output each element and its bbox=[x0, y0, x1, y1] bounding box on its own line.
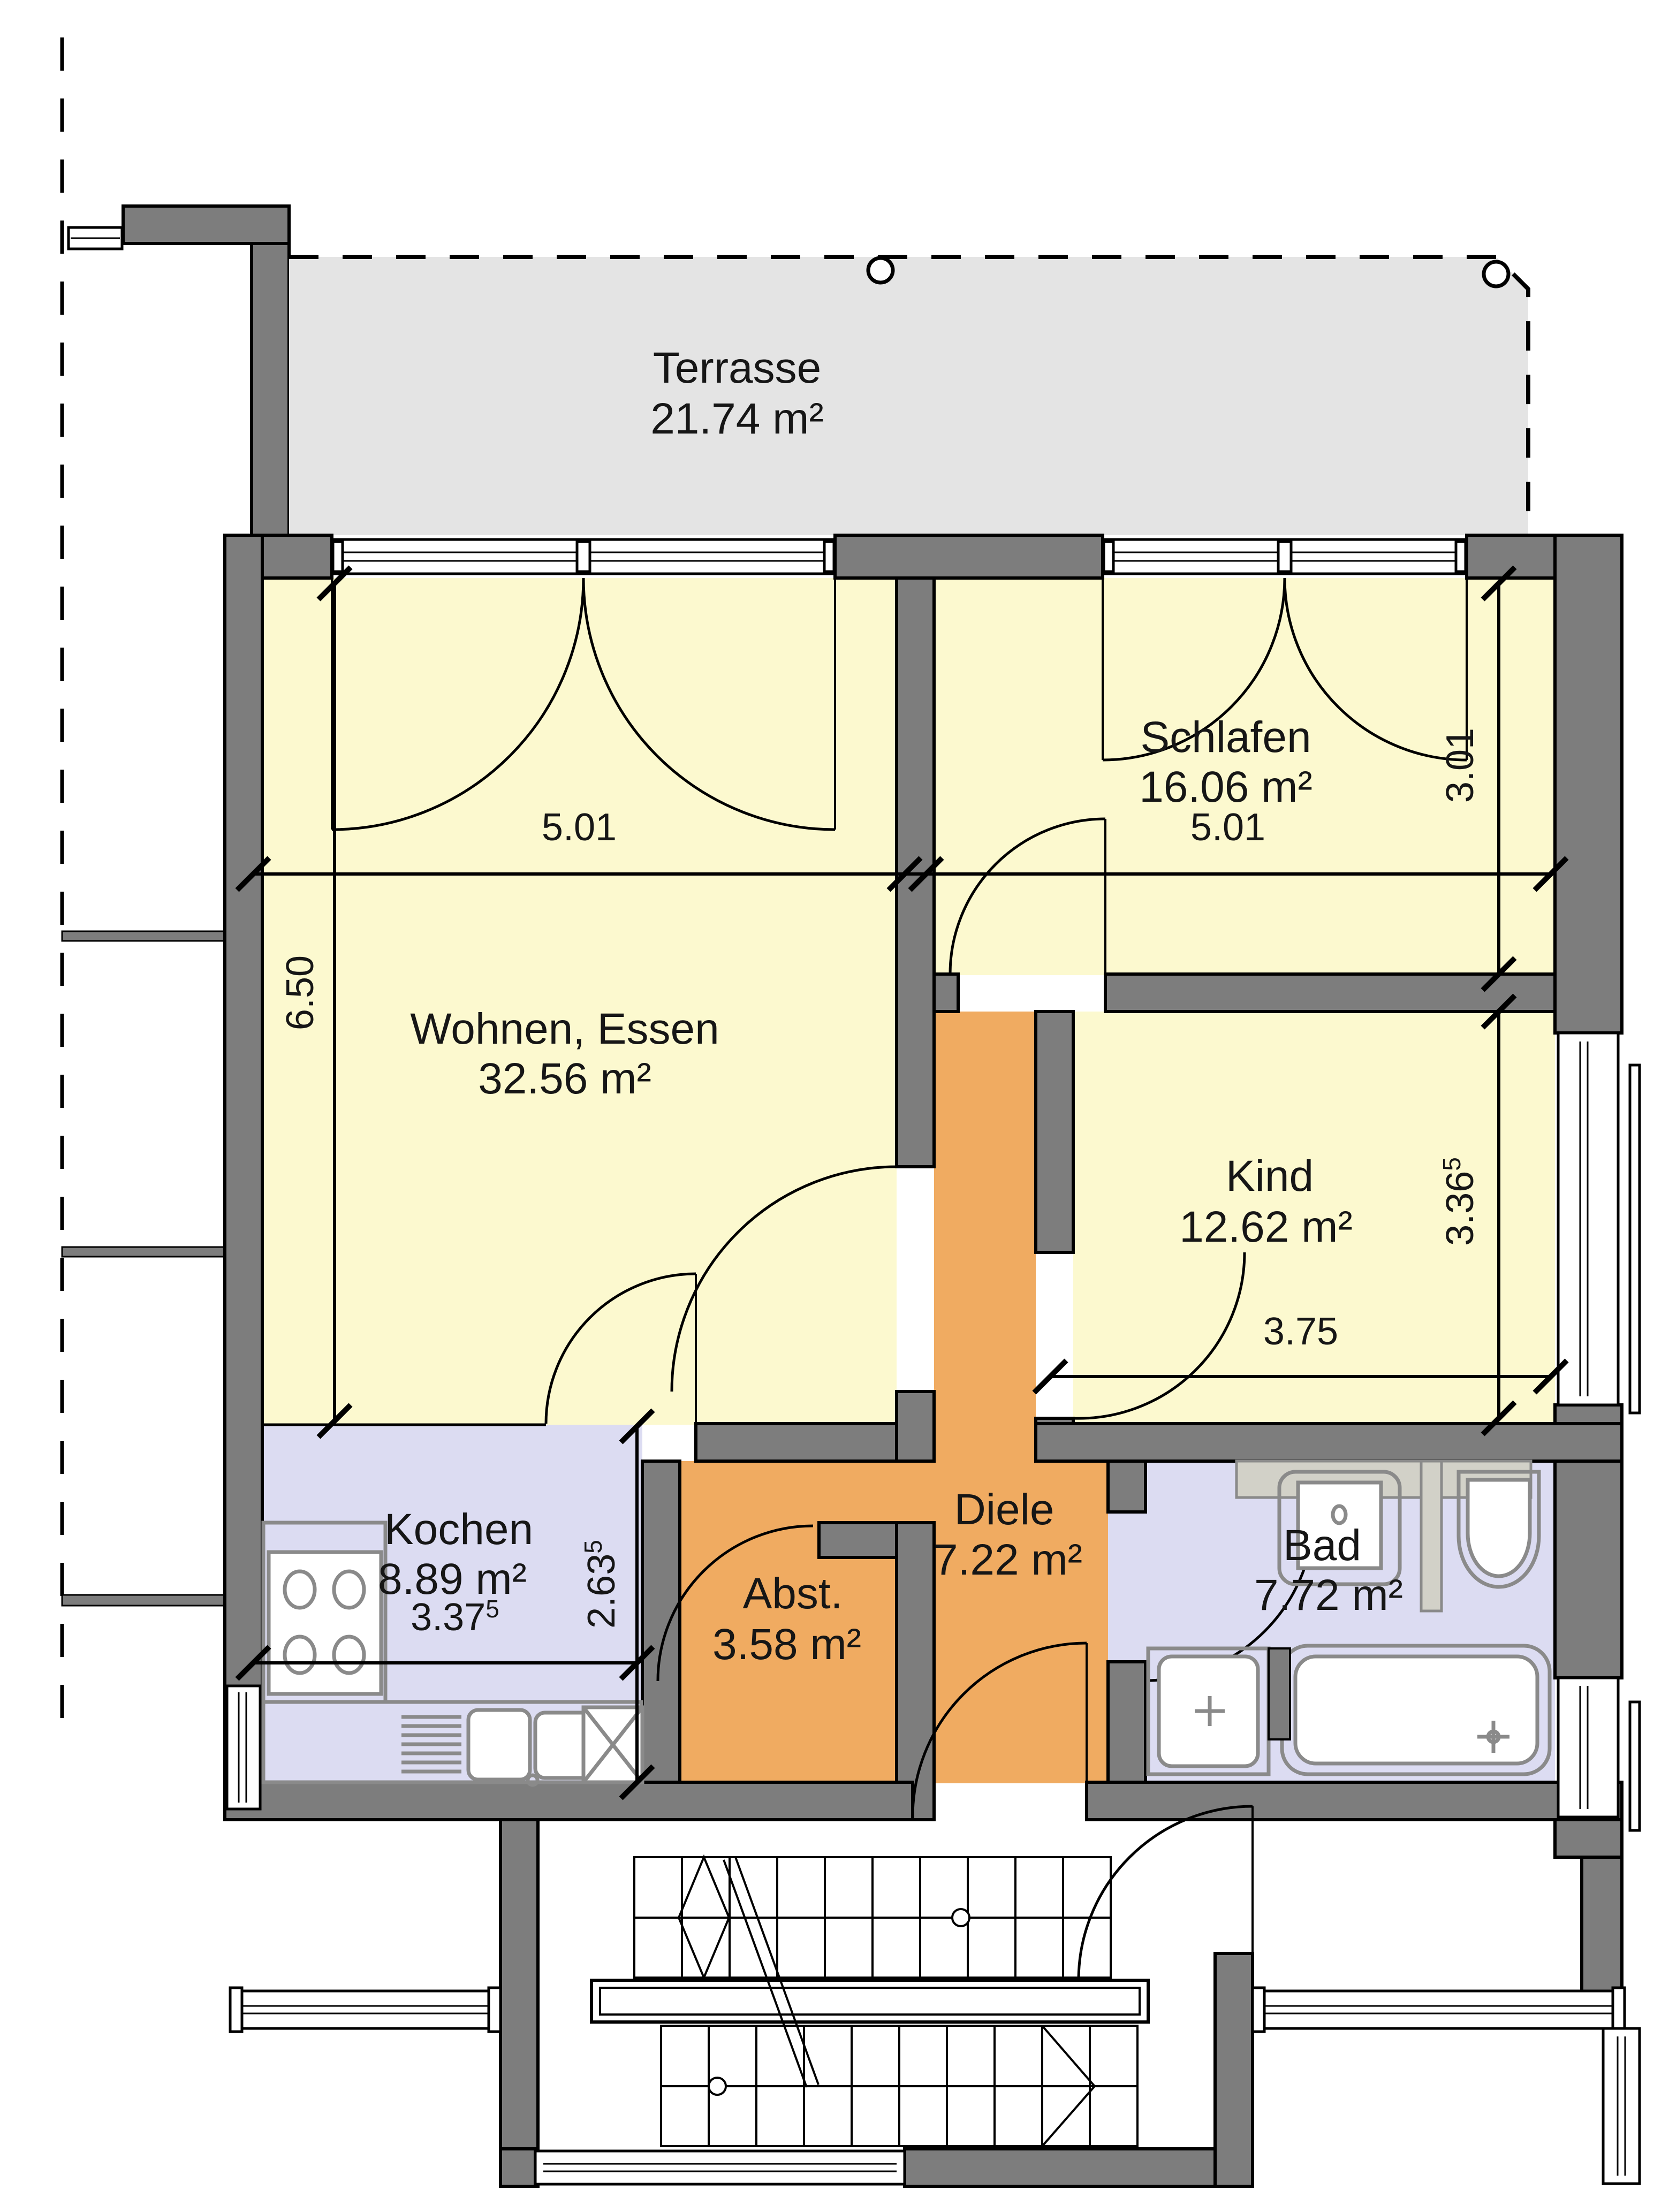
abstellraum-area-label: 3.58 m² bbox=[712, 1620, 861, 1669]
dim-schlafen-width: 5.01 bbox=[1190, 806, 1265, 849]
bath-partition bbox=[1421, 1461, 1442, 1611]
kind-area-label: 12.62 m² bbox=[1179, 1203, 1353, 1251]
svg-text:3.01: 3.01 bbox=[1439, 728, 1482, 803]
stove-icon bbox=[269, 1552, 381, 1694]
schlafen-area-label: 16.06 m² bbox=[1139, 763, 1313, 811]
shaft-icon bbox=[583, 1707, 642, 1782]
abst-door-threshold bbox=[680, 1523, 819, 1560]
toilet-icon bbox=[1459, 1472, 1539, 1587]
bathtub-icon bbox=[1282, 1646, 1550, 1774]
window-schlafen-terrace bbox=[1103, 539, 1467, 574]
abstellraum-label: Abst. bbox=[743, 1569, 843, 1618]
window-wohnen-terrace bbox=[332, 539, 835, 574]
terrasse-area-label: 21.74 m² bbox=[650, 394, 824, 443]
shower-partition-wall bbox=[1269, 1648, 1290, 1739]
svg-text:3.75: 3.75 bbox=[1263, 1310, 1338, 1353]
room-terrasse: Terrasse 21.74 m² bbox=[289, 257, 1528, 535]
terrasse-label: Terrasse bbox=[653, 344, 821, 392]
window-kochen bbox=[227, 1686, 260, 1809]
floor-plan: Terrasse 21.74 m² bbox=[0, 0, 1669, 2212]
window-band-stairwell bbox=[535, 2151, 905, 2184]
kind-label: Kind bbox=[1226, 1152, 1314, 1200]
window-band-left bbox=[230, 1988, 500, 2032]
terrasse-column bbox=[868, 258, 893, 283]
dim-wohnen-width: 5.01 bbox=[542, 806, 617, 849]
bad-door-threshold bbox=[1108, 1512, 1145, 1662]
room-diele-strip bbox=[642, 1461, 934, 1524]
wohnen-area-label: 32.56 m² bbox=[478, 1054, 651, 1103]
diele-label: Diele bbox=[954, 1485, 1054, 1534]
diele-area-label: 7.22 m² bbox=[934, 1536, 1082, 1584]
schlafen-label: Schlafen bbox=[1140, 713, 1311, 762]
room-wohnen-area bbox=[262, 578, 897, 1425]
bad-area-label: 7.72 m² bbox=[1254, 1571, 1403, 1620]
stairs-landing bbox=[591, 1980, 1148, 2022]
room-diele-neck bbox=[934, 1012, 1036, 1464]
window-band-right bbox=[1253, 1988, 1625, 2032]
kochen-area-label: 8.89 m² bbox=[378, 1555, 527, 1603]
terrasse-area bbox=[289, 257, 1528, 535]
terrasse-column bbox=[1484, 262, 1508, 286]
bad-label: Bad bbox=[1283, 1521, 1361, 1570]
shower-icon bbox=[1148, 1648, 1269, 1774]
svg-text:6.50: 6.50 bbox=[279, 955, 322, 1030]
kochen-label: Kochen bbox=[384, 1505, 533, 1554]
window-band-right-vertical bbox=[1603, 2028, 1640, 2184]
wohnen-label: Wohnen, Essen bbox=[410, 1005, 719, 1053]
